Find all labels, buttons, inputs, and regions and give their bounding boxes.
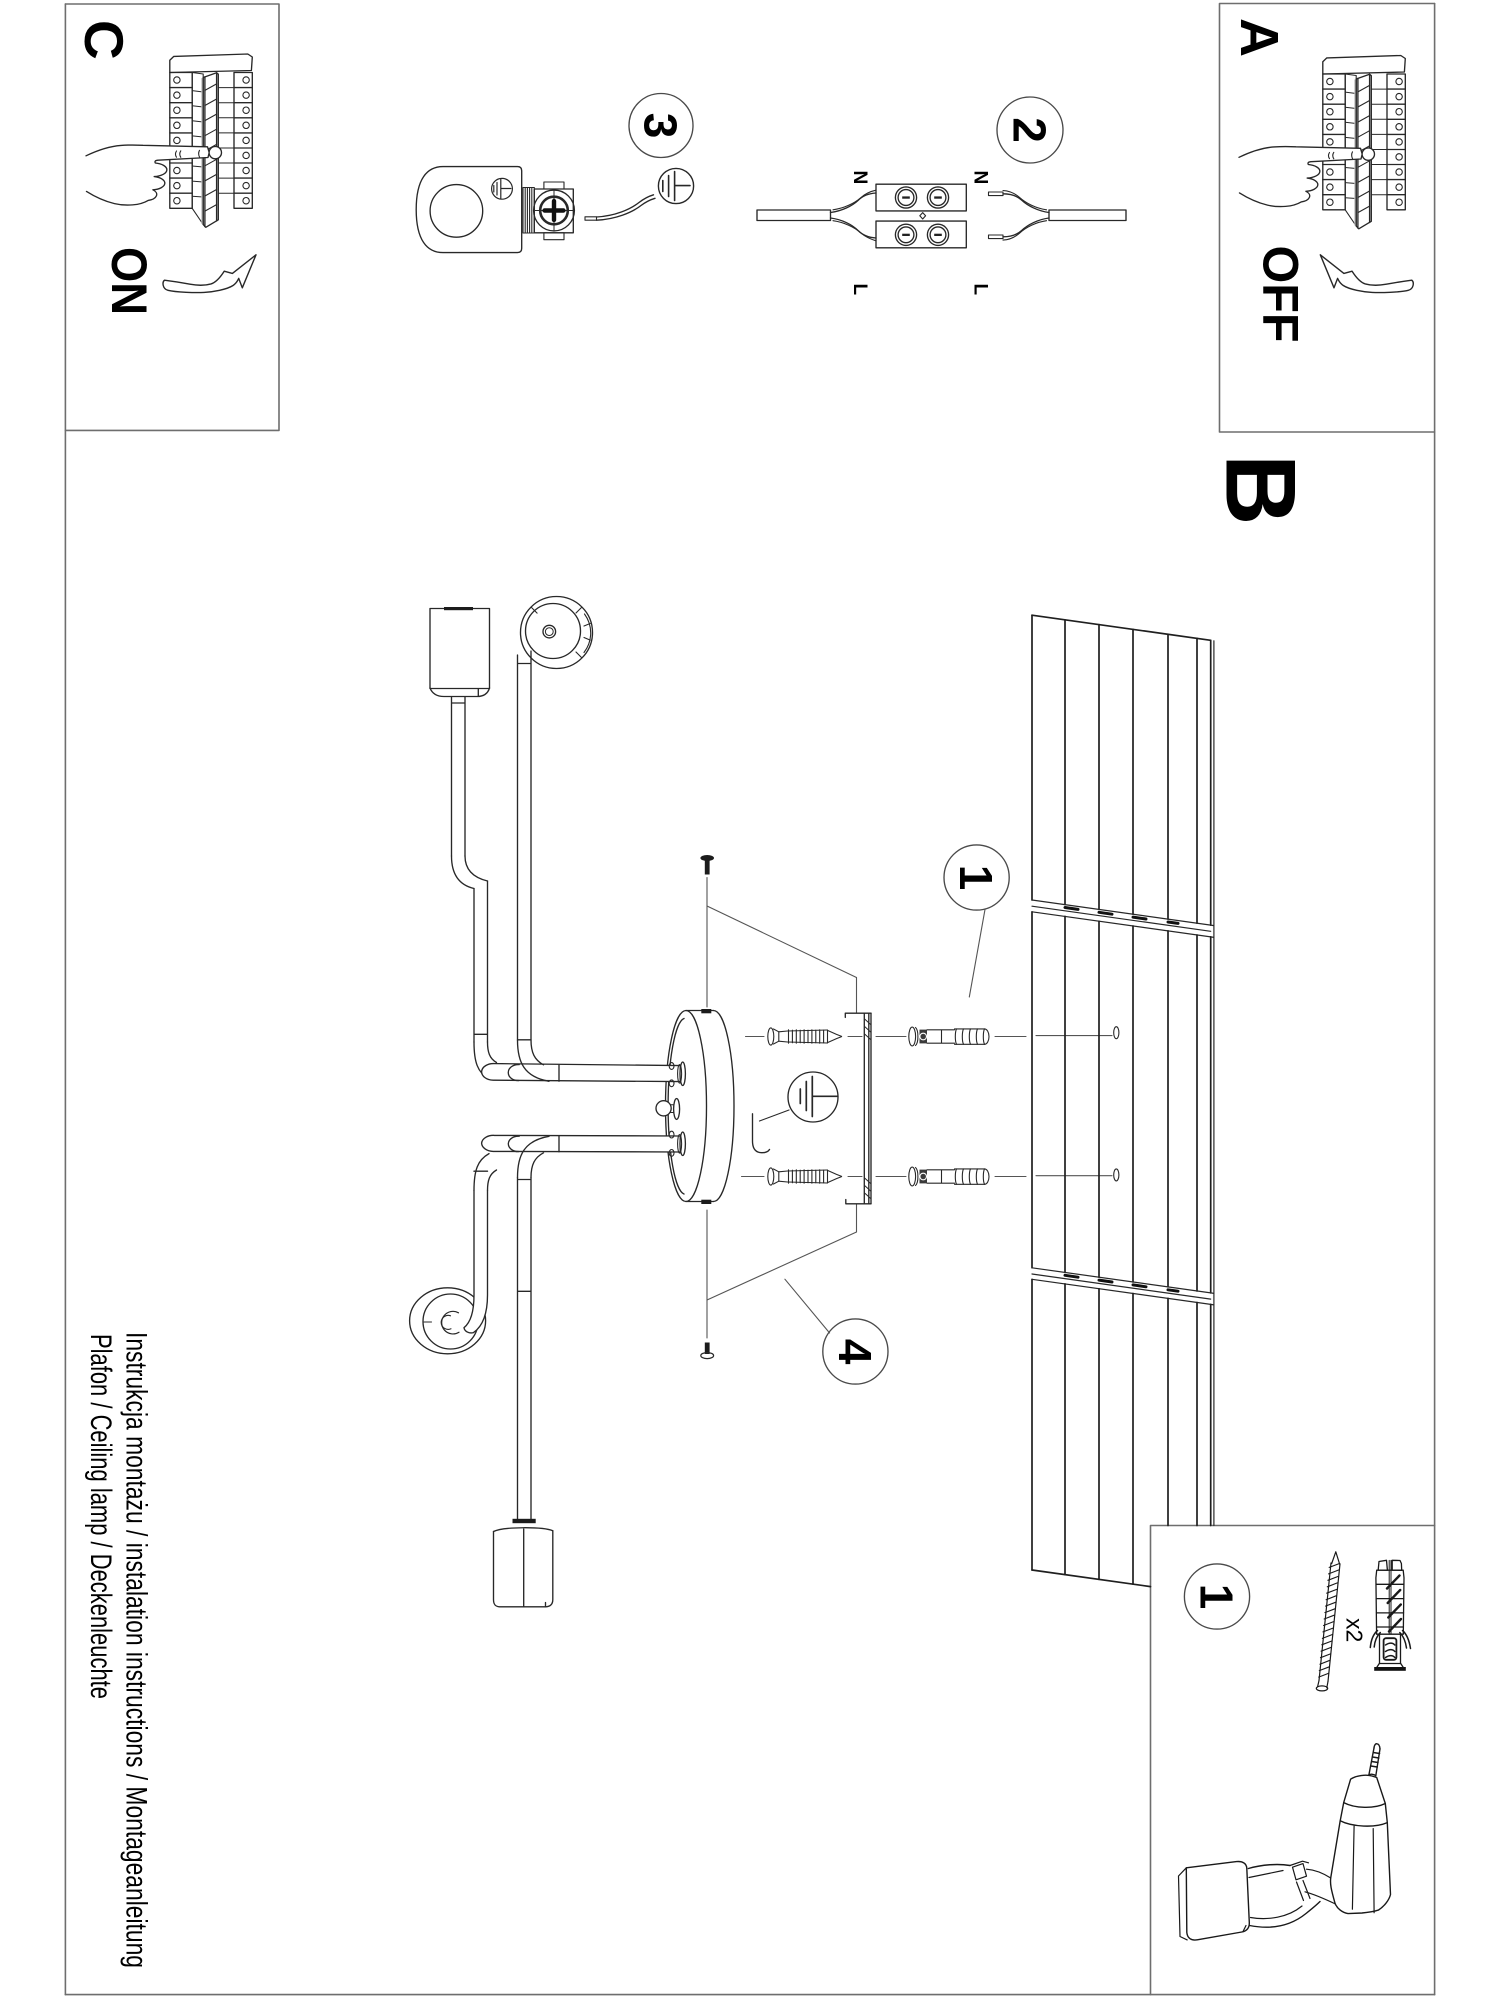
svg-text:2: 2	[1004, 117, 1056, 143]
svg-text:Plafon / Ceiling lamp / Decken: Plafon / Ceiling lamp / Deckenleuchte	[84, 1334, 117, 1699]
svg-text:C: C	[73, 20, 135, 60]
svg-text:ON: ON	[101, 247, 157, 315]
svg-text:N: N	[970, 171, 991, 185]
svg-text:1: 1	[1191, 1584, 1243, 1610]
svg-text:Instrukcja montażu / instalati: Instrukcja montażu / instalation instruc…	[120, 1332, 153, 1968]
svg-text:A: A	[1229, 18, 1289, 57]
svg-text:L: L	[849, 284, 870, 296]
svg-text:B: B	[1206, 454, 1317, 526]
svg-text:OFF: OFF	[1252, 246, 1308, 343]
svg-text:3: 3	[635, 113, 687, 139]
svg-text:N: N	[849, 171, 870, 185]
svg-text:4: 4	[829, 1339, 881, 1365]
svg-text:L: L	[970, 284, 991, 296]
svg-text:1: 1	[950, 865, 1002, 891]
svg-text:x2: x2	[1342, 1618, 1368, 1642]
